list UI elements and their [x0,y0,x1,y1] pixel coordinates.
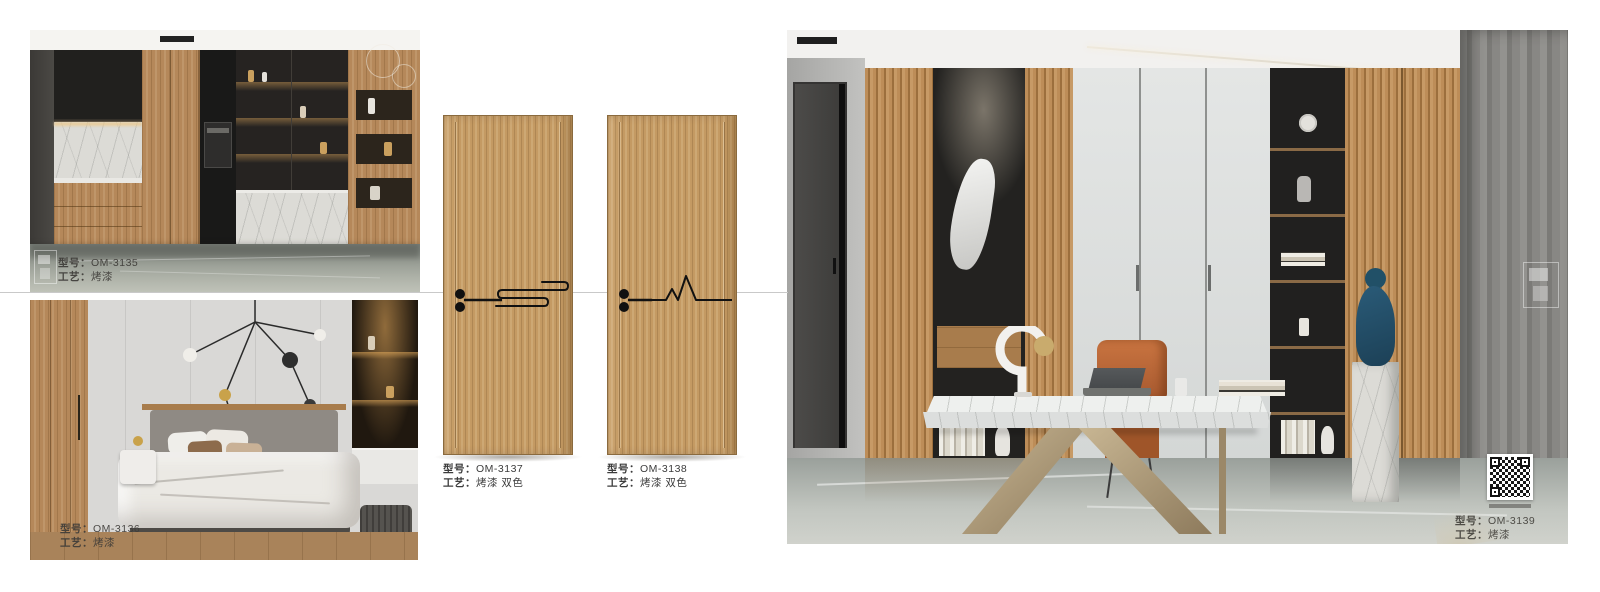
qr-finder [1520,457,1530,467]
model-row: 型号：OM-3138 [607,462,687,476]
ceiling-vent [797,37,837,44]
marble-desk-top [927,396,1267,412]
qr-finder [1490,487,1500,497]
oven-display [207,128,229,133]
model-value: OM-3139 [1488,515,1535,527]
door-heartbeat-motif-icon [608,116,738,456]
vase [320,142,327,154]
door-product-a [443,115,573,455]
bedroom-photo: 型号：OM-3136 工艺：烤漆 [30,300,418,560]
marble-desk-edge [923,412,1271,428]
pendant-light-globe [392,64,416,88]
model-row: 型号：OM-3139 [1455,514,1535,528]
model-value: OM-3136 [93,523,140,535]
study-ceiling [787,30,1568,68]
bottle [262,72,267,82]
cabinet-mullion [291,50,292,190]
mug [1175,378,1187,396]
upper-black-cabinets [54,50,142,122]
process-row: 工艺：烤漆 双色 [443,476,523,490]
process-row: 工艺：烤漆 [60,536,140,550]
process-row: 工艺：烤漆 [1455,528,1535,542]
process-key: 工艺： [58,271,91,283]
process-value: 烤漆 双色 [640,477,687,489]
model-row: 型号：OM-3136 [60,522,140,536]
model-value: OM-3135 [91,257,138,269]
product-label-study: 型号：OM-3139 工艺：烤漆 [1455,514,1535,542]
undercabinet-light [54,122,142,126]
hand-sculpture [1321,426,1334,454]
book-stack [1281,252,1325,266]
process-value: 烤漆 双色 [476,477,523,489]
product-label-bedroom: 型号：OM-3136 工艺：烤漆 [60,522,140,550]
shelf-edge [1270,346,1345,349]
lit-shelf [352,400,418,407]
brand-logo-watermark-icon [34,250,57,284]
model-row: 型号：OM-3135 [58,256,138,270]
qr-code-icon [1487,454,1533,500]
process-row: 工艺：烤漆 双色 [607,476,687,490]
lit-shelf [352,352,418,359]
lit-shelf [236,154,348,163]
process-row: 工艺：烤漆 [58,270,138,284]
door-gap [839,84,845,448]
wall-clock [1299,114,1317,132]
reed-diffuser [1299,318,1309,336]
process-value: 烤漆 [1488,529,1510,541]
model-value: OM-3138 [640,463,687,475]
model-key: 型号： [607,463,640,475]
process-value: 烤漆 [93,537,115,549]
nightstand [120,450,156,484]
shelf-edge [1270,412,1345,415]
vase [368,98,375,114]
ceiling-vent [160,36,194,42]
arc-desk-lamp [992,326,1077,400]
table-lamp [133,436,143,446]
model-key: 型号： [58,257,91,269]
vase [384,142,392,156]
vanity-cabinet [352,448,418,484]
door-handle [1208,265,1211,291]
brand-logo-watermark-icon [1523,262,1559,308]
laptop-screen [1088,368,1145,390]
process-key: 工艺： [1455,529,1488,541]
door-handle [833,258,836,274]
shelf-edge [1270,148,1345,151]
vase [370,186,380,200]
vase [368,336,375,350]
process-value: 烤漆 [91,271,113,283]
niche-glow [352,300,418,448]
kitchen-ceiling [30,30,420,50]
wall-panel-seam [125,300,126,460]
vase [386,386,394,398]
door-product-b [607,115,737,455]
marble-pedestal [1352,362,1399,502]
kitchen-left-wall [30,50,54,244]
qr-caption-text [1489,504,1531,508]
model-value: OM-3137 [476,463,523,475]
bottle [248,70,254,82]
catalog-page: 型号：OM-3135 工艺：烤漆 [0,0,1600,592]
book-row [1281,420,1315,454]
shelf-niche [356,178,412,208]
blue-draped-statue [1356,286,1395,366]
kitchen-photo: 型号：OM-3135 工艺：烤漆 [30,30,420,292]
product-label-kitchen: 型号：OM-3135 工艺：烤漆 [58,256,138,284]
marble-backsplash [54,122,142,180]
wardrobe-seam [70,300,71,538]
door-handle [1136,265,1139,291]
product-label-door-a: 型号：OM-3137 工艺：烤漆 双色 [443,462,523,490]
qr-pattern [1490,457,1530,497]
model-key: 型号： [1455,515,1488,527]
laptop-base [1083,388,1151,396]
panel-seam [1401,68,1403,458]
process-key: 工艺： [443,477,476,489]
shelf-edge [1270,214,1345,217]
qr-finder [1490,457,1500,467]
process-key: 工艺： [607,477,640,489]
lit-shelf [236,82,348,91]
wardrobe-handle [78,395,80,440]
marble-island [236,190,348,244]
pantry-seam [170,50,171,244]
gold-desk-legs [957,426,1257,536]
model-key: 型号： [60,523,93,535]
study-photo: 型号：OM-3139 工艺：烤漆 [787,30,1568,544]
toy-figure [1297,176,1311,202]
shelf-niche [356,90,412,120]
tall-pantry-cabinet [142,50,200,244]
model-row: 型号：OM-3137 [443,462,523,476]
process-key: 工艺： [60,537,93,549]
lit-shelf [236,118,348,127]
book-stack [1219,380,1285,396]
bottle [300,106,306,118]
fluted-wood-panel [865,68,933,458]
product-label-door-b: 型号：OM-3138 工艺：烤漆 双色 [607,462,687,490]
door-meander-motif-icon [444,116,574,456]
wardrobe-seam [50,300,51,538]
model-key: 型号： [443,463,476,475]
shelf-edge [1270,280,1345,283]
